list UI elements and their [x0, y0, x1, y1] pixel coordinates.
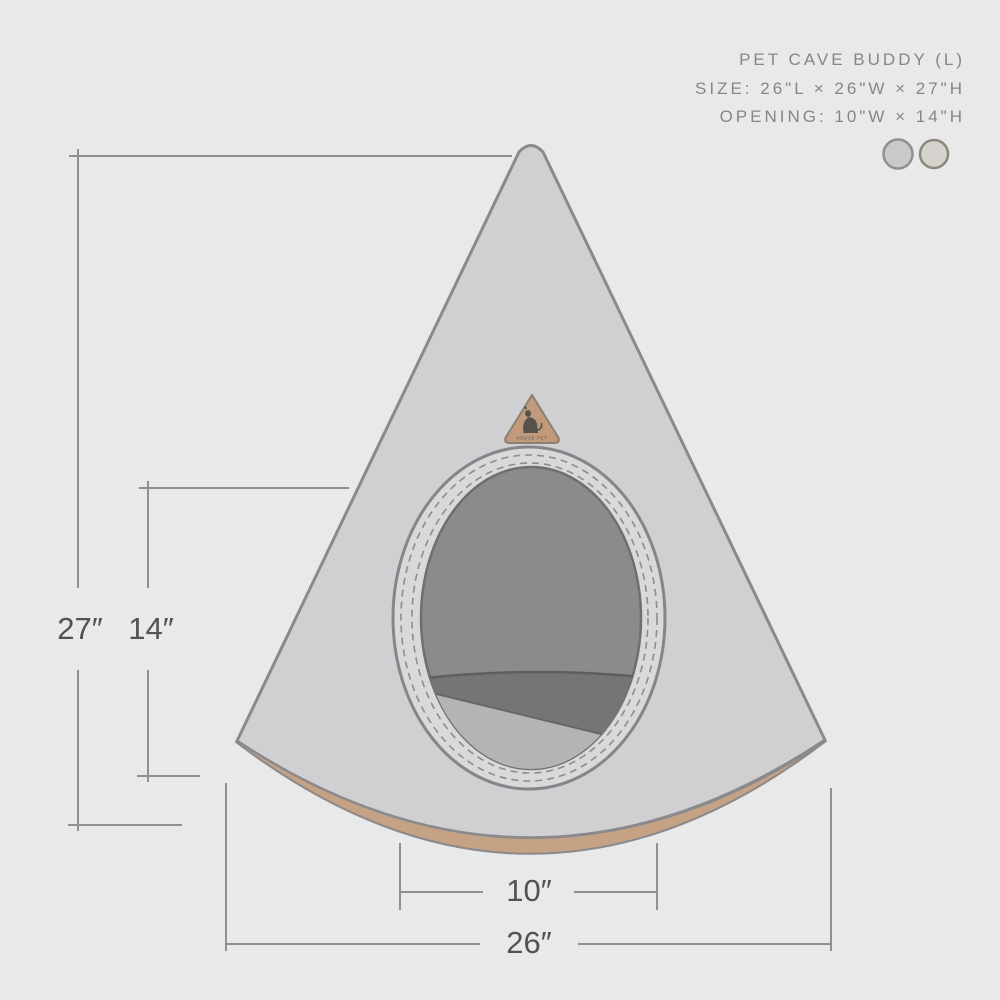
pet-cave-illustration: HOUSE PET — [236, 146, 826, 854]
swatch-cool-gray[interactable] — [884, 140, 913, 169]
product-opening-line: OPENING: 10"W × 14"H — [695, 103, 965, 132]
product-info: PET CAVE BUDDY (L) SIZE: 26"L × 26"W × 2… — [695, 46, 965, 132]
dimension-label-base-width: 26″ — [506, 925, 551, 961]
dimension-label-opening-height: 14″ — [128, 611, 173, 647]
pet-cave-diagram: HOUSE PET — [0, 0, 1000, 1000]
diagram-canvas: HOUSE PET PET CAVE BUDDY (L) SIZE: 26"L … — [0, 0, 1000, 1000]
color-swatches — [884, 140, 949, 169]
badge-label: HOUSE PET — [516, 436, 547, 441]
dimension-label-total-height: 27″ — [57, 611, 102, 647]
product-title: PET CAVE BUDDY (L) — [695, 46, 965, 75]
dimension-label-opening-width: 10″ — [506, 873, 551, 909]
swatch-warm-beige[interactable] — [920, 140, 948, 168]
product-size-line: SIZE: 26"L × 26"W × 27"H — [695, 75, 965, 104]
